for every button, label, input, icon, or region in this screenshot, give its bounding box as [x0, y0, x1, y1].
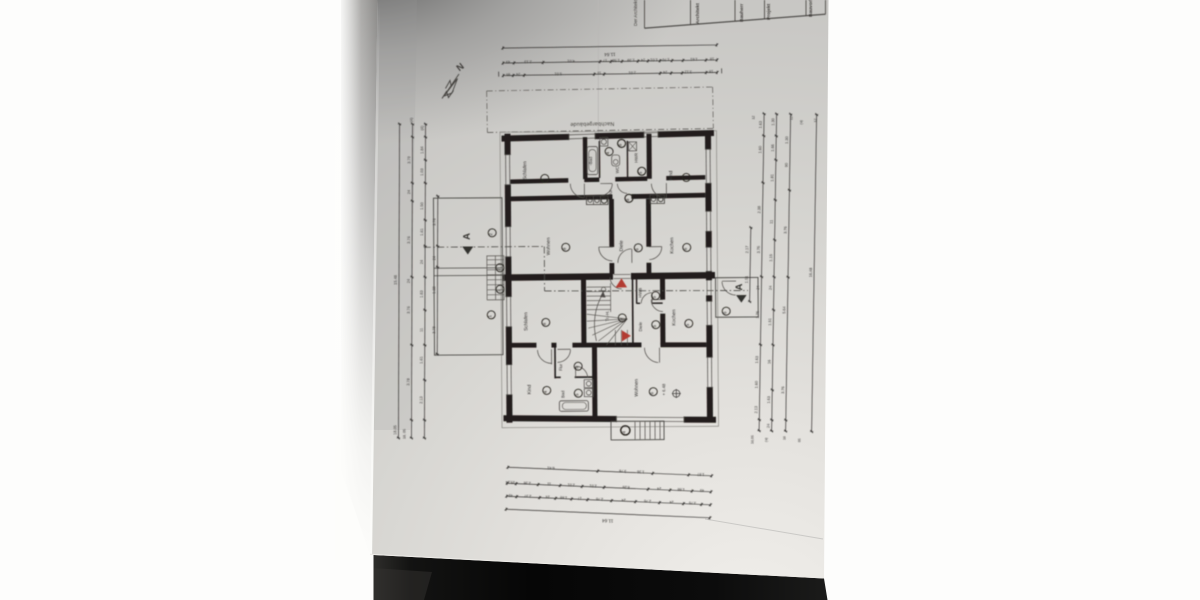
svg-text:18: 18 [709, 69, 713, 73]
svg-text:24: 24 [516, 72, 520, 76]
svg-text:1.60: 1.60 [755, 381, 759, 388]
svg-text:3.12: 3.12 [684, 70, 691, 74]
svg-text:3.76: 3.76 [756, 311, 760, 318]
svg-text:11: 11 [547, 482, 551, 486]
svg-text:1.70: 1.70 [662, 57, 669, 61]
svg-text:3.78: 3.78 [406, 378, 410, 385]
svg-text:3.76: 3.76 [757, 246, 761, 253]
svg-text:3.76: 3.76 [784, 226, 788, 233]
svg-text:2.13: 2.13 [754, 406, 758, 413]
svg-text:(4): (4) [799, 120, 803, 124]
svg-text:24: 24 [766, 424, 770, 428]
svg-text:2.01: 2.01 [628, 70, 635, 74]
svg-text:2.37: 2.37 [524, 494, 531, 498]
svg-text:4: 4 [621, 431, 626, 434]
svg-text:1.63: 1.63 [759, 121, 763, 128]
svg-text:2.01: 2.01 [589, 484, 596, 488]
svg-text:3.76: 3.76 [781, 386, 785, 393]
svg-text:3.78: 3.78 [432, 326, 436, 333]
svg-text:1.87: 1.87 [697, 472, 705, 476]
svg-text:11: 11 [770, 220, 774, 224]
svg-text:(4): (4) [410, 118, 414, 122]
svg-text:12: 12 [790, 116, 794, 120]
svg-text:15.48: 15.48 [393, 275, 398, 285]
svg-text:18,05: 18,05 [393, 425, 397, 435]
svg-text:Flur: Flur [558, 363, 563, 371]
svg-text:1.88: 1.88 [560, 495, 567, 499]
svg-text:1.15: 1.15 [769, 254, 773, 261]
svg-text:1.30: 1.30 [785, 136, 789, 143]
svg-text:24: 24 [657, 486, 661, 490]
svg-text:1.63: 1.63 [755, 356, 759, 363]
svg-text:Diele: Diele [638, 321, 643, 331]
svg-text:1.83: 1.83 [420, 290, 424, 297]
svg-text:24: 24 [432, 256, 436, 260]
svg-text:A: A [462, 233, 473, 240]
svg-text:16,48: 16,48 [809, 268, 813, 278]
svg-text:(4): (4) [420, 125, 424, 130]
svg-text:24: 24 [663, 70, 667, 74]
svg-text:18,05: 18,05 [750, 435, 754, 444]
svg-text:16: 16 [767, 360, 771, 364]
svg-text:Architekt: Architekt [695, 3, 701, 24]
svg-text:11: 11 [420, 328, 424, 332]
svg-text:18, 05: 18, 05 [402, 429, 406, 439]
svg-text:2.13: 2.13 [419, 396, 423, 403]
svg-text:1.84: 1.84 [420, 146, 424, 153]
svg-text:24: 24 [407, 190, 411, 194]
svg-text:24: 24 [756, 286, 760, 290]
svg-text:24: 24 [407, 279, 411, 283]
svg-text:3.79: 3.79 [407, 156, 411, 163]
svg-text:1.01: 1.01 [650, 58, 657, 62]
svg-text:17: 17 [603, 58, 607, 62]
svg-text:95: 95 [506, 72, 510, 76]
svg-text:1.51: 1.51 [768, 318, 772, 325]
svg-text:+ 6.48: + 6.48 [661, 383, 666, 395]
svg-text:90: 90 [785, 163, 789, 167]
svg-text:12: 12 [813, 119, 817, 123]
svg-text:3.76: 3.76 [432, 218, 436, 225]
svg-text:1.50: 1.50 [420, 202, 424, 209]
svg-text:24: 24 [546, 495, 550, 499]
svg-text:24: 24 [769, 286, 773, 290]
svg-text:Diele: Diele [619, 240, 625, 251]
svg-text:3.76: 3.76 [407, 236, 411, 243]
svg-text:Tr.-H.: Tr.-H. [605, 311, 610, 322]
svg-text:5.64: 5.64 [782, 306, 786, 313]
svg-text:1.58: 1.58 [612, 58, 619, 62]
svg-text:Bauherr: Bauherr [739, 3, 745, 22]
svg-text:11.64: 11.64 [604, 52, 616, 57]
svg-text:Wohnen: Wohnen [546, 237, 552, 255]
svg-text:Kochen: Kochen [671, 309, 677, 326]
svg-text:24: 24 [669, 500, 673, 504]
svg-text:Bad: Bad [560, 390, 565, 398]
svg-text:18: 18 [710, 57, 714, 61]
svg-text:17: 17 [577, 496, 581, 500]
svg-text:1.36: 1.36 [637, 470, 645, 474]
svg-text:2.13: 2.13 [524, 59, 531, 63]
svg-text:8.26: 8.26 [622, 485, 629, 489]
svg-text:1.39: 1.39 [627, 58, 634, 62]
svg-text:Projekt: Projekt [766, 3, 772, 20]
svg-text:6.41: 6.41 [547, 466, 555, 470]
svg-text:3.76: 3.76 [619, 469, 627, 473]
svg-text:1.61: 1.61 [420, 356, 424, 363]
svg-text:11: 11 [597, 71, 601, 75]
svg-text:49: 49 [506, 60, 510, 64]
svg-text:11.64: 11.64 [602, 518, 614, 523]
svg-text:18: 18 [782, 436, 786, 440]
svg-text:Flur: Flur [608, 189, 613, 197]
svg-text:2.38: 2.38 [757, 206, 761, 213]
svg-text:2.76: 2.76 [596, 497, 603, 501]
svg-text:3.76: 3.76 [689, 501, 696, 505]
svg-text:24: 24 [641, 58, 645, 62]
svg-text:HWB: HWB [638, 288, 643, 298]
svg-text:HWR: HWR [634, 153, 639, 163]
svg-text:1.81: 1.81 [770, 174, 774, 181]
svg-text:1.51: 1.51 [745, 276, 749, 283]
svg-text:1.63: 1.63 [767, 396, 771, 403]
svg-text:5.01: 5.01 [554, 72, 561, 76]
svg-text:Schlafen: Schlafen [523, 312, 529, 331]
svg-text:Nachbargebäude: Nachbargebäude [570, 120, 614, 127]
svg-text:Kochen: Kochen [669, 237, 675, 254]
svg-text:1.30: 1.30 [771, 118, 775, 125]
svg-text:4.01: 4.01 [567, 59, 574, 63]
svg-text:3.76: 3.76 [407, 306, 411, 313]
svg-text:1.66: 1.66 [771, 144, 775, 151]
svg-text:1.38: 1.38 [432, 286, 436, 293]
svg-text:25,24: 25,24 [506, 480, 515, 484]
svg-text:24: 24 [621, 498, 625, 502]
svg-text:-Bad: -Bad [588, 156, 593, 166]
svg-text:Bauvorh.: Bauvorh. [808, 0, 814, 17]
svg-text:A: A [734, 283, 745, 290]
svg-text:2.76: 2.76 [644, 499, 651, 503]
svg-text:1.60: 1.60 [758, 146, 762, 153]
svg-text:05: 05 [797, 438, 801, 442]
svg-text:2.36: 2.36 [524, 481, 531, 485]
svg-text:2.01: 2.01 [568, 483, 575, 487]
svg-text:WC: WC [615, 166, 620, 173]
svg-text:Kind: Kind [527, 384, 533, 394]
svg-text:1.61: 1.61 [420, 228, 424, 235]
svg-text:49: 49 [509, 493, 513, 497]
svg-text:24: 24 [420, 260, 424, 264]
svg-text:1.88: 1.88 [677, 487, 684, 491]
svg-text:Wohnen: Wohnen [634, 379, 640, 397]
svg-text:12: 12 [752, 116, 756, 120]
svg-text:1.03: 1.03 [420, 168, 424, 175]
svg-text:Der Architekt: Der Architekt [633, 0, 638, 26]
svg-text:49: 49 [700, 488, 704, 492]
svg-text:Schlafen: Schlafen [522, 161, 528, 180]
svg-text:(4): (4) [764, 438, 768, 442]
svg-text:2.17: 2.17 [745, 246, 749, 253]
svg-text:Kind: Kind [668, 170, 674, 180]
svg-text:1.61: 1.61 [690, 57, 697, 61]
